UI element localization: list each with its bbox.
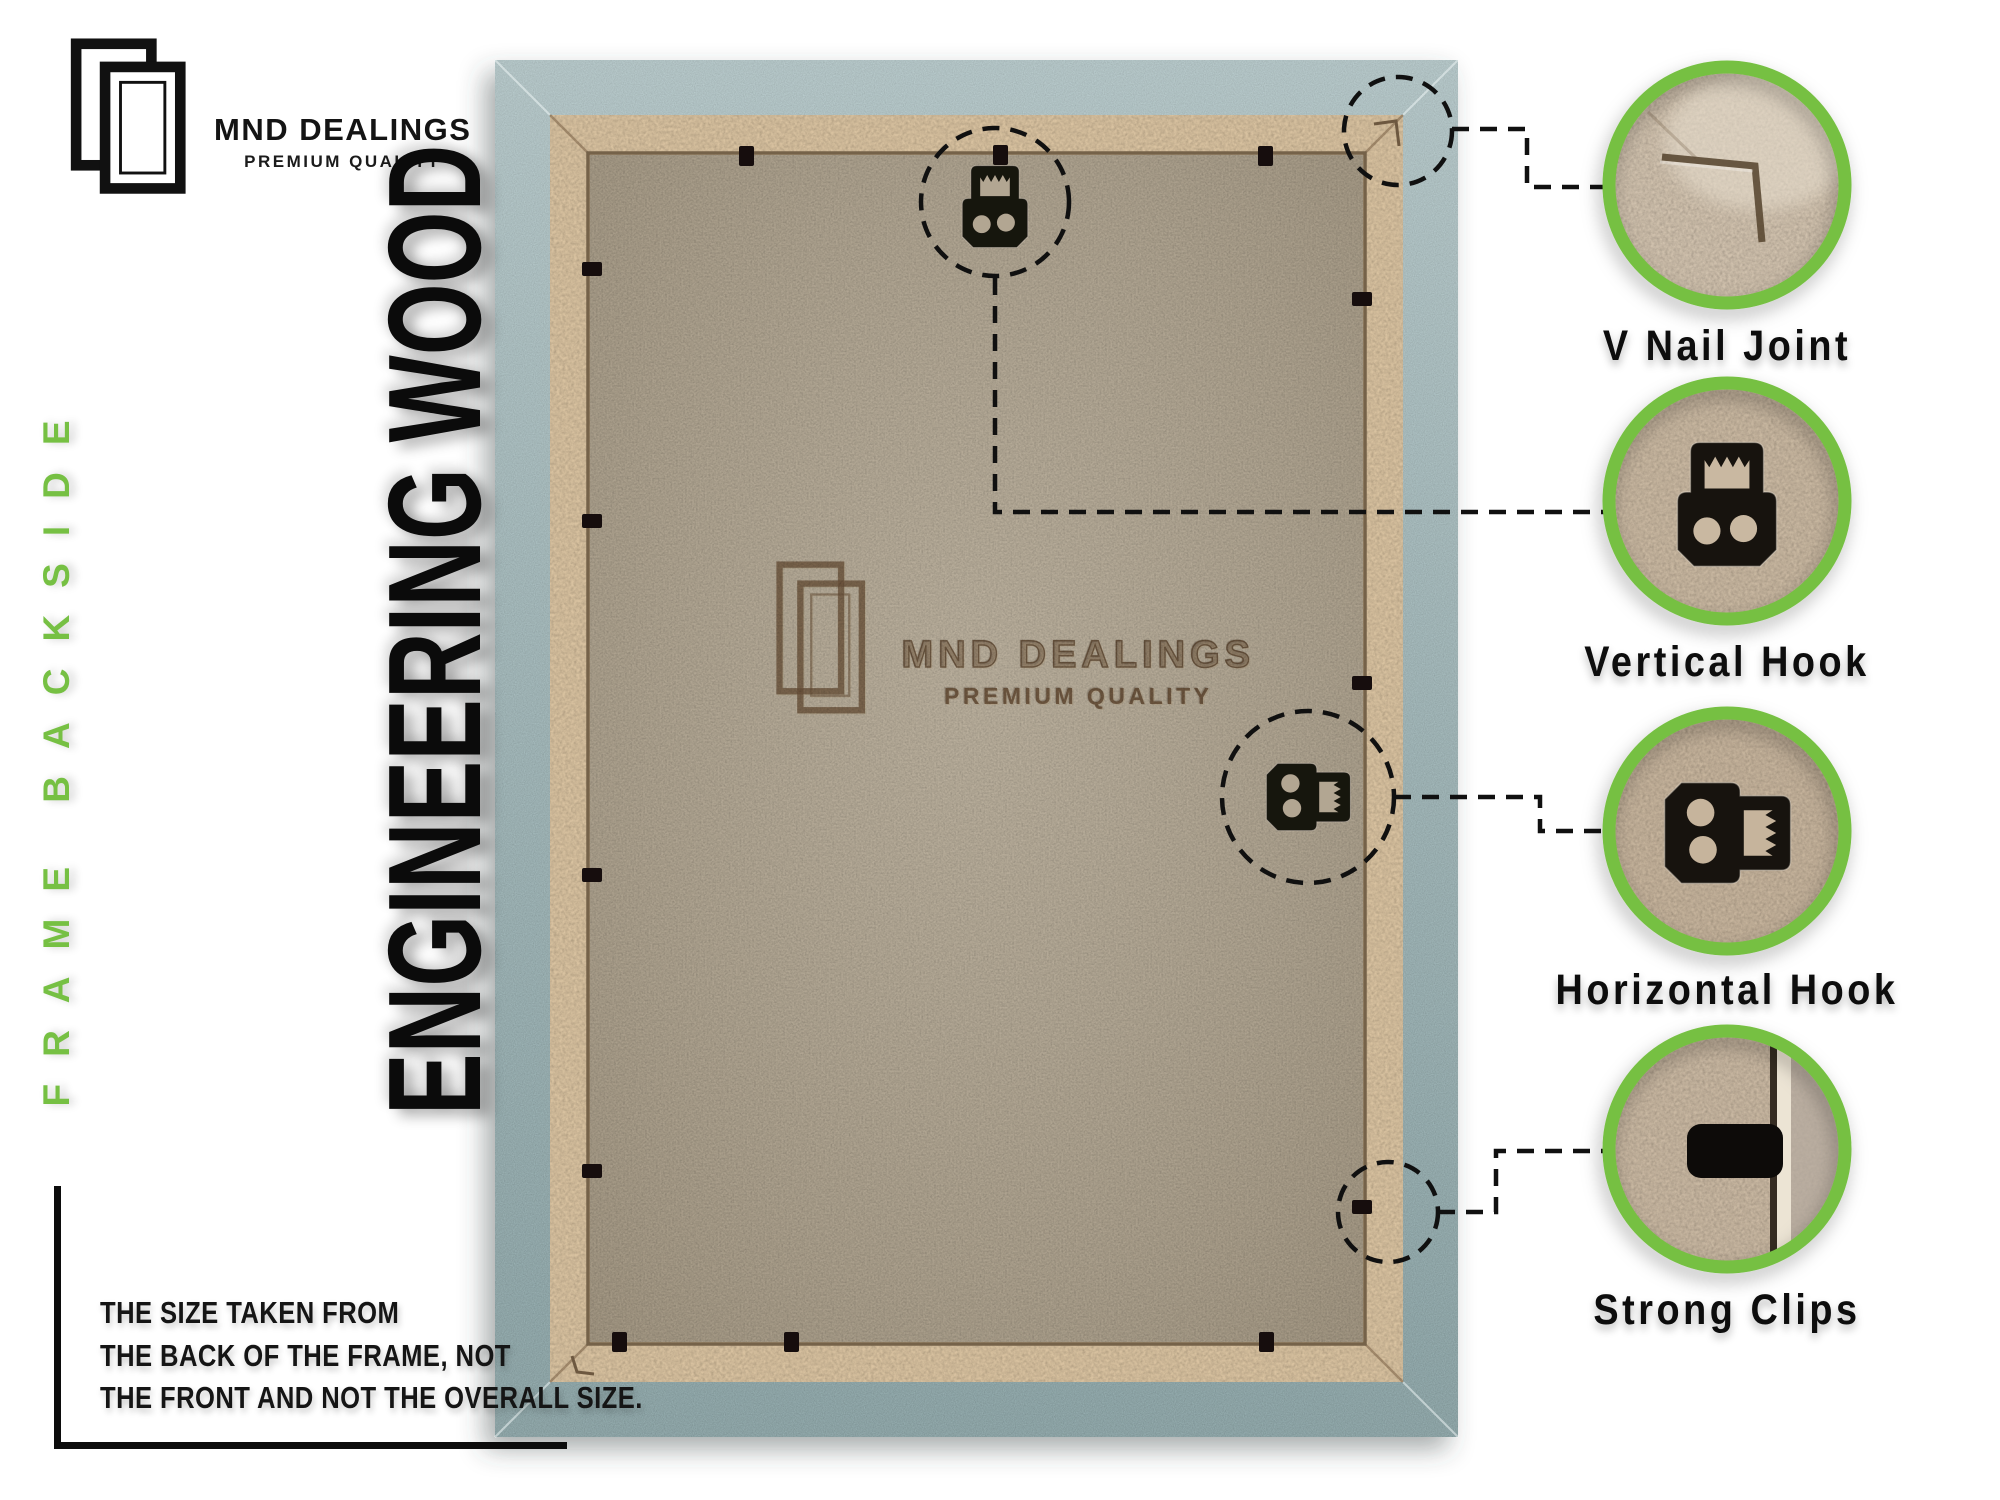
vertical-hook-on-frame bbox=[962, 166, 1028, 248]
callout-vertical-hook bbox=[1609, 383, 1845, 619]
watermark-tagline: PREMIUM QUALITY bbox=[902, 683, 1255, 710]
connector-v-nail bbox=[1452, 129, 1606, 187]
brand-name: MND DEALINGS bbox=[214, 112, 471, 148]
strong-clip bbox=[1687, 1124, 1783, 1178]
frame-backside-infographic: MND DEALINGS PREMIUM QUALITY FRAME BACKS… bbox=[0, 0, 2000, 1500]
engineering-wood-label: ENGINEERING WOOD bbox=[365, 345, 505, 1115]
watermark-name: MND DEALINGS bbox=[902, 634, 1255, 677]
frame-backside-label: FRAME BACKSIDE bbox=[22, 390, 92, 1110]
label-horizontal-hook: Horizontal Hook bbox=[1525, 966, 1930, 1018]
size-note: THE SIZE TAKEN FROM THE BACK OF THE FRAM… bbox=[100, 1292, 660, 1420]
size-note-line-3: THE FRONT AND NOT THE OVERALL SIZE. bbox=[100, 1377, 570, 1420]
connector-strong-clips bbox=[1438, 1151, 1606, 1212]
label-v-nail-joint: V Nail Joint bbox=[1525, 322, 1930, 374]
label-vertical-hook: Vertical Hook bbox=[1525, 638, 1930, 690]
size-note-line-2: THE BACK OF THE FRAME, NOT bbox=[100, 1335, 570, 1378]
frame-backside bbox=[495, 60, 1458, 1437]
watermark-frame-icon bbox=[775, 556, 884, 736]
size-note-line-1: THE SIZE TAKEN FROM bbox=[100, 1292, 570, 1335]
callout-horizontal-hook bbox=[1609, 713, 1845, 949]
double-picture-frame-icon bbox=[70, 38, 198, 200]
watermark: MND DEALINGS PREMIUM QUALITY bbox=[775, 556, 1255, 736]
callout-v-nail-joint bbox=[1608, 67, 1855, 310]
horizontal-hook-on-frame bbox=[1266, 763, 1350, 830]
label-strong-clips: Strong Clips bbox=[1525, 1286, 1930, 1338]
callout-strong-clips bbox=[1609, 1031, 1847, 1271]
